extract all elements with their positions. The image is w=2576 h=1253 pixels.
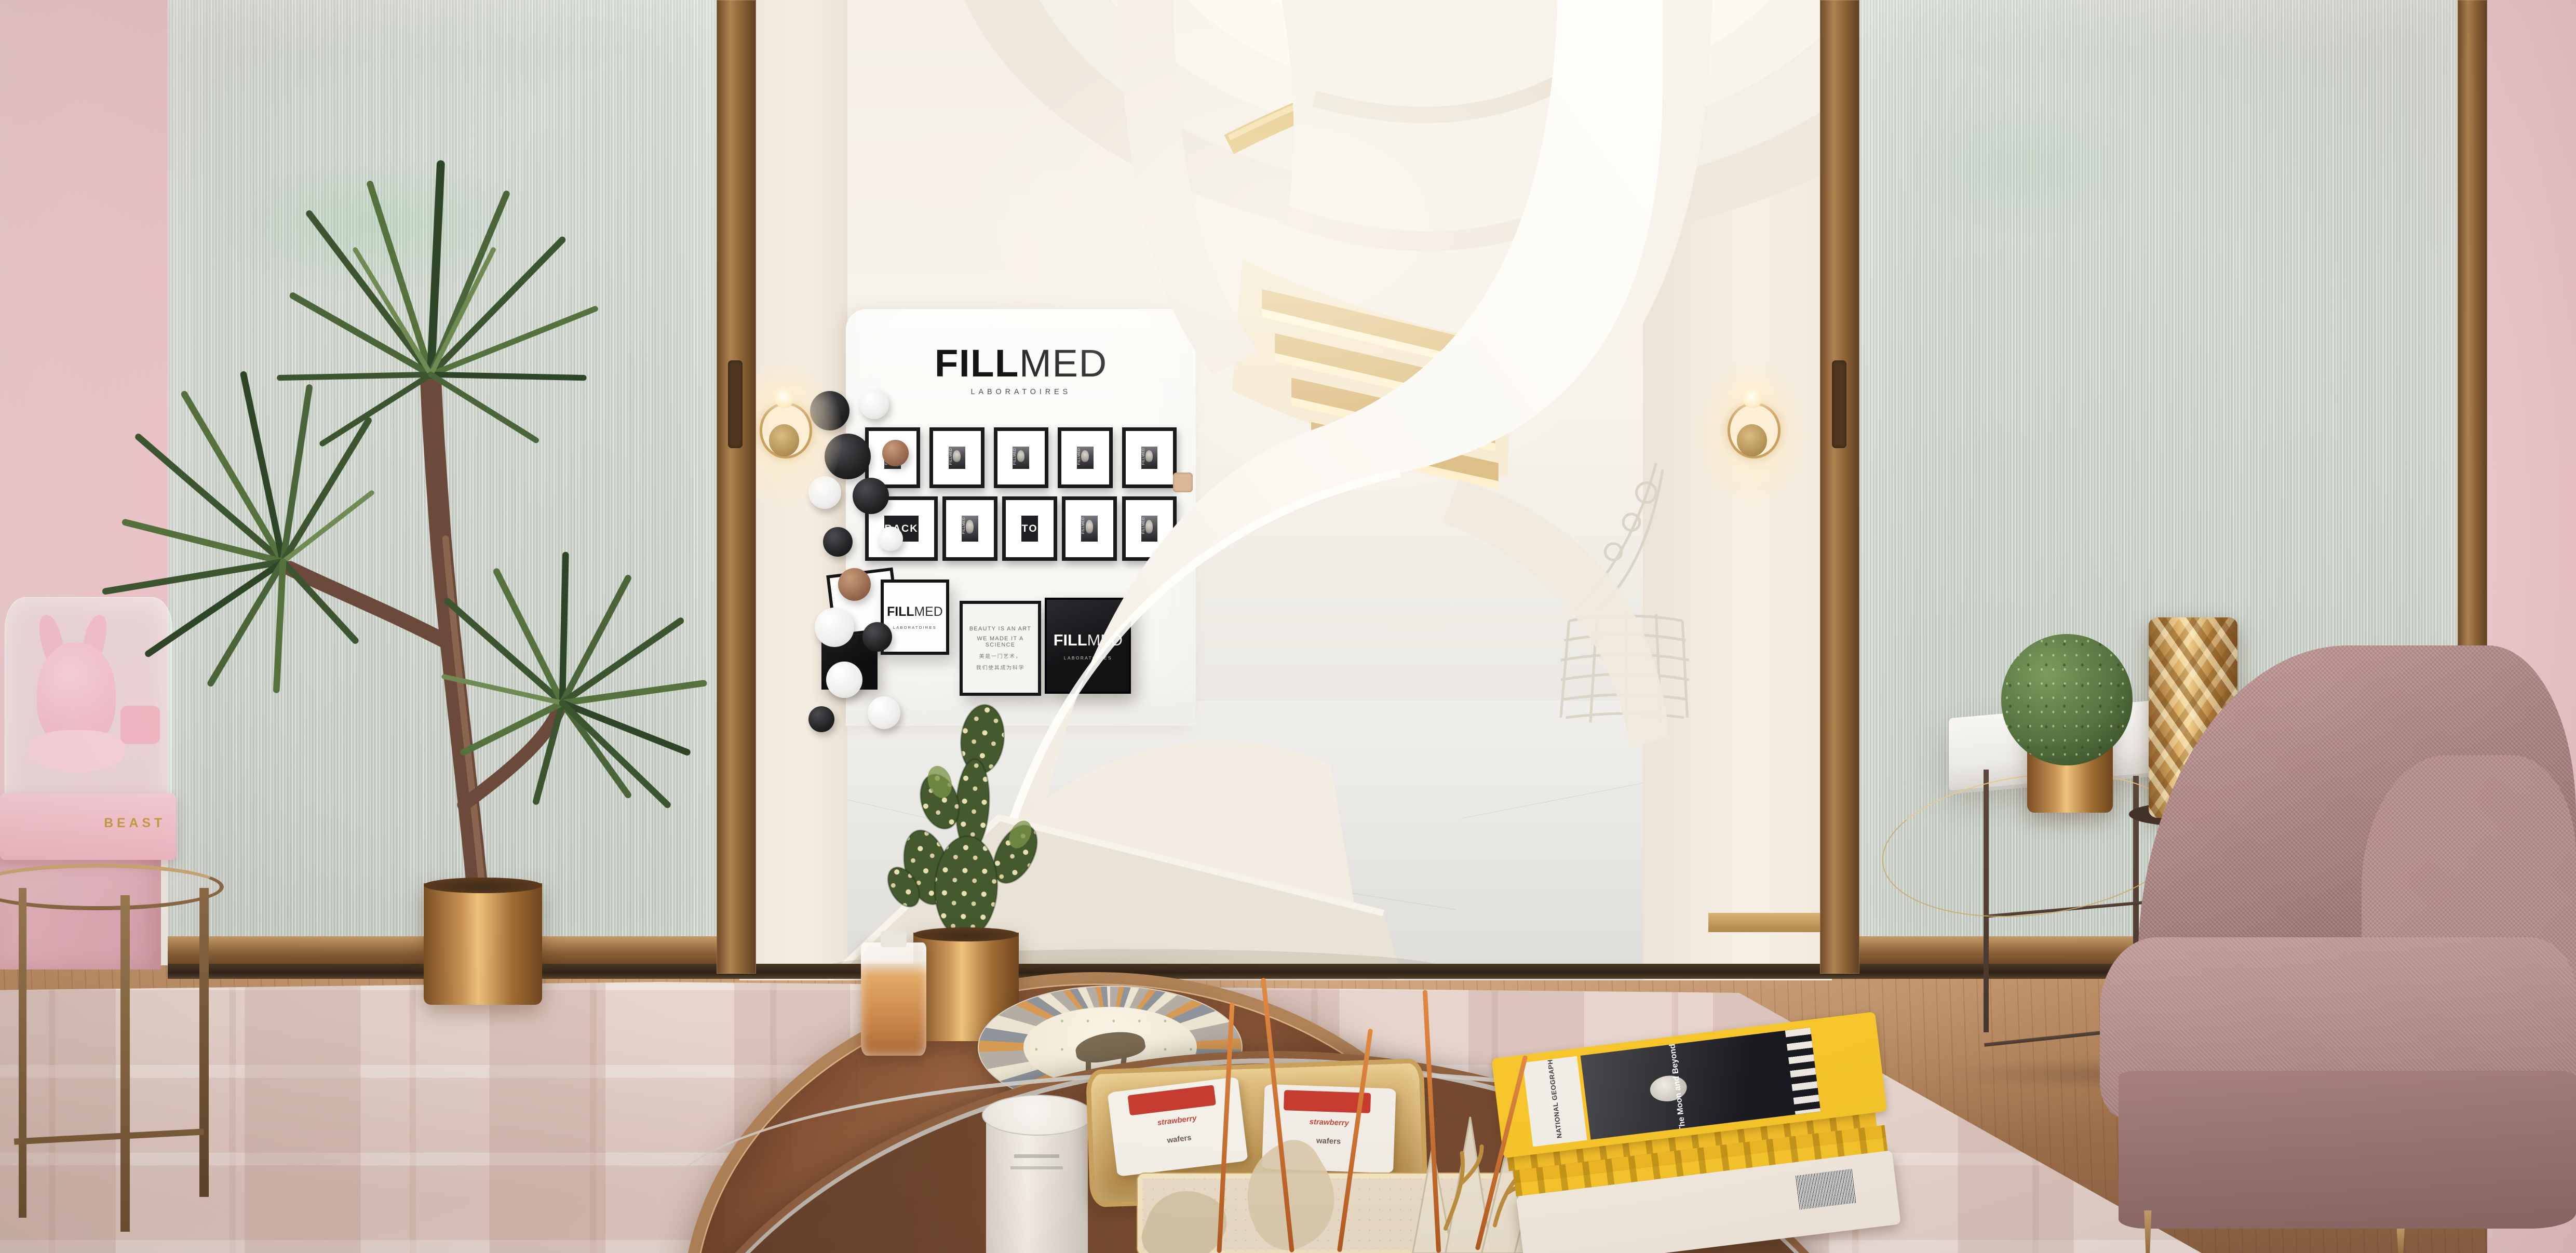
filmstrip <box>1785 1028 1821 1114</box>
magazine-cover: The Moon and Beyond <box>1581 1028 1821 1140</box>
display-table-leg <box>19 888 26 1218</box>
tea-tin <box>986 1103 1088 1253</box>
planter-rim <box>424 878 542 893</box>
armchair <box>2100 645 2576 1253</box>
magazine-brand-2: GEOGRAPHIC <box>1545 1057 1558 1101</box>
display-table-rail <box>14 1129 204 1145</box>
showroom-scene: FILLMED LABORATOIRES FILLMED FILLMED FIL… <box>0 0 2576 1253</box>
cactus <box>881 703 1051 949</box>
armchair-base <box>2119 1071 2576 1229</box>
brass-planter <box>424 883 542 1005</box>
door-handle-left <box>728 360 742 448</box>
tin-lid <box>982 1095 1094 1136</box>
barcode <box>1796 1169 1856 1210</box>
door-handle-right <box>1832 360 1846 448</box>
plate-horse-motif <box>1073 1027 1147 1066</box>
magazine-brand-1: NATIONAL <box>1551 1102 1563 1139</box>
door-frame-right <box>1820 0 1859 974</box>
magazine-margin: NATIONAL GEOGRAPHIC <box>1523 1057 1587 1147</box>
wafer-text-1: strawberry <box>1263 1116 1395 1129</box>
armchair-leg <box>2395 1229 2406 1253</box>
cactus-pot-rim <box>913 927 1018 941</box>
perfume-bottle <box>861 942 927 1056</box>
perfume-cap <box>881 931 907 947</box>
yucca-plant <box>33 99 723 1018</box>
wafer-brand-block <box>1127 1085 1216 1115</box>
staircase-glow <box>958 0 1613 441</box>
